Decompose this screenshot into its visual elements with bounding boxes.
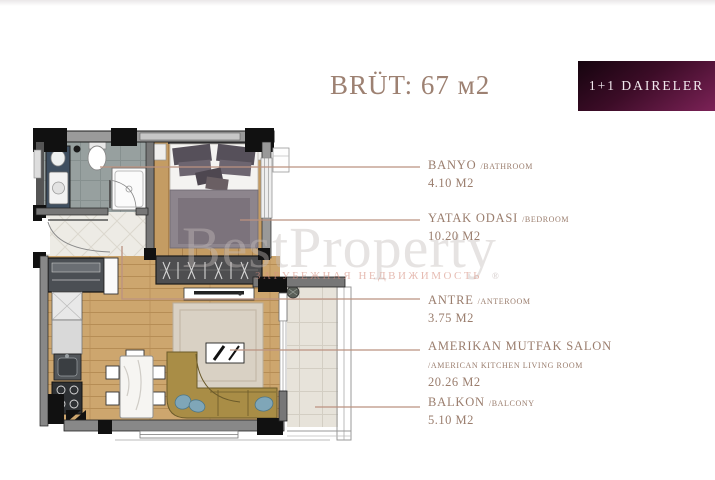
room-label-amerikan-mutfak-salon: AMERIKAN MUTFAK SALON /AMERICAN KITCHEN … [428,337,612,390]
tv-console [184,288,254,300]
room-name: BANYO [428,158,476,172]
room-name: BALKON [428,395,485,409]
room-name: YATAK ODASI [428,211,518,225]
room-label-yatak-odasi: YATAK ODASI /BEDROOM 10.20 M2 [428,209,569,244]
room-area: 10.20 M2 [428,229,569,244]
brochure-page: BRÜT: 67 м2 1+1 DAIRELER [0,0,715,480]
bed [154,136,262,248]
room-area: 4.10 M2 [428,176,533,191]
room-name: ANTRE [428,293,474,307]
room-label-antre: ANTRE /ANTEROOM 3.75 M2 [428,291,531,326]
room-area: 20.26 M2 [428,375,612,390]
entry-cabinet [48,258,118,294]
wardrobe [156,256,262,284]
room-name-alt: /ANTEROOM [478,297,531,306]
room-name-alt: /BATHROOM [480,162,533,171]
room-label-balkon: BALKON /BALCONY 5.10 M2 [428,393,535,428]
room-area: 5.10 M2 [428,413,535,428]
room-name: AMERIKAN MUTFAK SALON [428,339,612,353]
floor-plan [0,0,715,480]
room-label-banyo: BANYO /BATHROOM 4.10 M2 [428,156,533,191]
coffee-table [206,343,244,363]
room-name-alt: /BALCONY [489,399,535,408]
room-area: 3.75 M2 [428,311,531,326]
room-name-alt: /BEDROOM [522,215,569,224]
room-name-alt: /AMERICAN KITCHEN LIVING ROOM [428,361,583,370]
